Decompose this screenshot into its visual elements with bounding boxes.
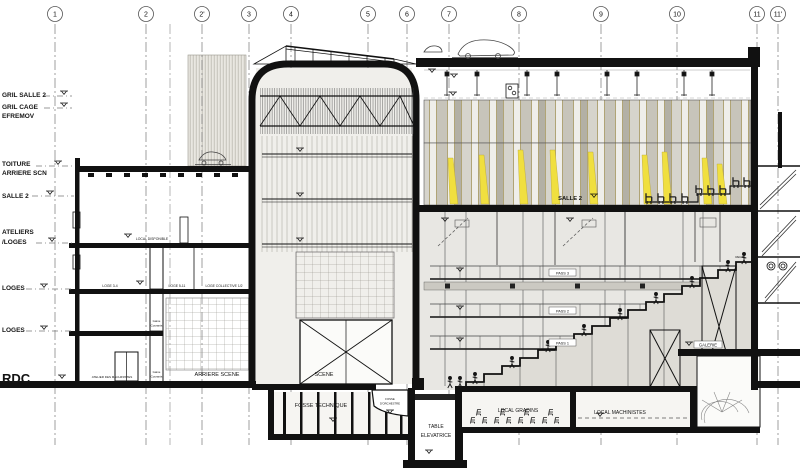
- label-loge-34: LOGE 3-4: [102, 284, 117, 288]
- level-arriere-scn: ARRIERE SCN: [2, 170, 47, 177]
- grid-bubble-10: 10: [673, 12, 681, 19]
- grid-bubble-6: 6: [405, 12, 409, 19]
- level-ateliers: ATELIERS: [2, 229, 34, 236]
- label-gaine-1a: Gaine: [153, 319, 161, 323]
- grid-bubble-11: 11: [753, 12, 760, 19]
- label-fosse-orchestre-1: FOSSE: [385, 397, 395, 401]
- label-fosse-orchestre-2: D'ORCHESTRE: [380, 402, 400, 406]
- label-gaine-1b: Courants: [151, 324, 163, 328]
- label-salle2: SALLE 2: [558, 196, 582, 202]
- level-gril-salle2: GRIL SALLE 2: [2, 92, 46, 99]
- stage-backdrop-grid: [296, 252, 394, 318]
- grid-bubble-7: 7: [447, 12, 451, 19]
- label-pass1: PASS 1: [556, 342, 569, 346]
- stage-floor: [252, 384, 376, 390]
- grid-bubble-8: 8: [517, 12, 521, 19]
- level-gril-cage: GRIL CAGE: [2, 104, 39, 111]
- level-salle2: SALLE 2: [2, 193, 29, 200]
- label-table-elevatrice-2: ELEVATRICE: [421, 433, 452, 439]
- label-local-disponible: LOCAL DISPONIBLE: [136, 237, 169, 241]
- storage-racks: [166, 298, 249, 370]
- cladding-panel: [188, 55, 246, 166]
- label-loge-511: LOGE 5-11: [169, 284, 186, 288]
- label-fosse-technique: FOSSE TECHNIQUE: [295, 403, 348, 409]
- salle2-floor-slab: [416, 205, 758, 212]
- level-loges-2: LOGES: [2, 327, 25, 334]
- level-toiture: TOITURE: [2, 161, 31, 168]
- section-drawing: GRIL SALLE 2 GRIL CAGE EFREMOV TOITURE A…: [0, 0, 800, 474]
- grid-bubble-3: 3: [247, 12, 251, 19]
- level-efremov: EFREMOV: [2, 113, 35, 120]
- wall-band-upper: [424, 100, 751, 143]
- label-gaine-2a: Gaine: [153, 370, 161, 374]
- label-scene: SCENE: [315, 372, 334, 378]
- grid-bubble-9: 9: [599, 12, 603, 19]
- grid-bubble-2: 2: [144, 12, 148, 19]
- label-table-elevatrice-1: TABLE: [428, 424, 444, 430]
- grid-bubble-2p: 2': [199, 12, 204, 19]
- fly-lines: [260, 136, 414, 252]
- gril-truss: [260, 88, 414, 134]
- label-pass2: PASS 2: [556, 310, 569, 314]
- galerie-slab: [678, 349, 800, 356]
- grid-bubble-11p: 11': [774, 12, 783, 19]
- level-rdc: RDC: [2, 371, 31, 386]
- grid-bubble-4: 4: [289, 12, 293, 19]
- hall-roof-slab: [416, 58, 758, 67]
- grid-bubble-1: 1: [53, 12, 57, 19]
- wall-band-lower: [424, 143, 751, 205]
- section-svg: GRIL SALLE 2 GRIL CAGE EFREMOV TOITURE A…: [0, 0, 800, 474]
- label-atelier-machinistes: ATELIER DES MACHINISTES: [92, 375, 133, 379]
- label-loge-collective: LOGE COLLECTIVE 1/2: [205, 284, 242, 288]
- level-loges-a: /LOGES: [2, 239, 27, 246]
- roof-joists: [88, 173, 238, 177]
- label-regie: REGIE: [735, 255, 744, 259]
- level-loges-1: LOGES: [2, 285, 25, 292]
- label-pass3: PASS 3: [556, 272, 569, 276]
- label-arriere-scene: ARRIERE SCENE: [195, 372, 240, 378]
- label-local-machinistes: LOCAL MACHINISTES: [594, 410, 646, 416]
- spiral-stair: [697, 356, 760, 433]
- label-gaine-2b: Courants: [151, 375, 163, 379]
- grid-bubble-5: 5: [366, 12, 370, 19]
- label-local-gradins: LOCAL GRADINS: [498, 408, 539, 414]
- label-galerie: GALERIE: [699, 343, 717, 348]
- fly-tower: [252, 46, 416, 390]
